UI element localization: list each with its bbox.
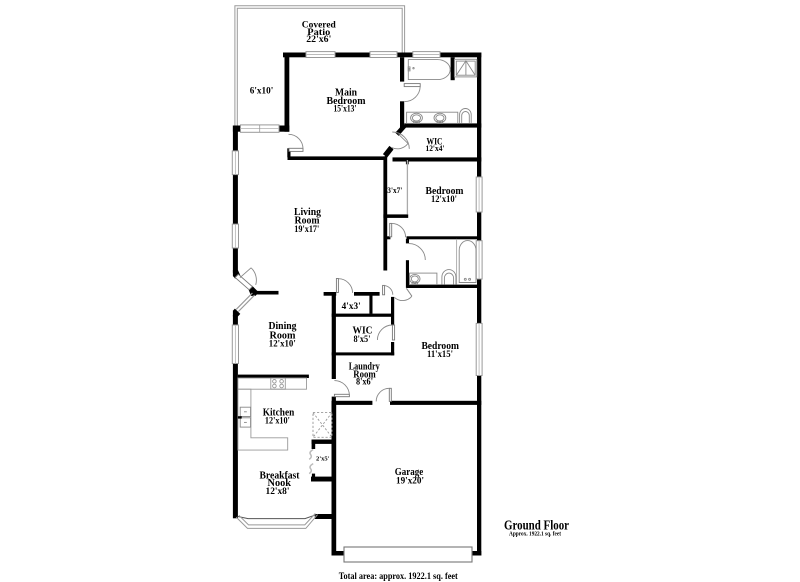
svg-text:12'x8': 12'x8' bbox=[266, 486, 290, 496]
svg-text:12'x10': 12'x10' bbox=[265, 415, 290, 425]
svg-text:15'x13': 15'x13' bbox=[334, 104, 357, 114]
svg-text:19'x17': 19'x17' bbox=[294, 225, 319, 235]
svg-text:8'x6': 8'x6' bbox=[356, 376, 373, 386]
svg-text:Total area: approx. 1922.1 sq.: Total area: approx. 1922.1 sq. feet bbox=[339, 571, 459, 582]
svg-text:4'x3': 4'x3' bbox=[342, 301, 361, 311]
svg-text:12'x10': 12'x10' bbox=[431, 194, 457, 204]
svg-text:22'x6': 22'x6' bbox=[306, 34, 331, 44]
svg-text:Ground Floor: Ground Floor bbox=[504, 517, 569, 532]
svg-text:2'x5': 2'x5' bbox=[316, 456, 330, 463]
svg-text:Approx. 1922.1 sq. feet: Approx. 1922.1 sq. feet bbox=[509, 531, 561, 537]
svg-text:6'x10': 6'x10' bbox=[250, 87, 274, 97]
svg-text:8'x5': 8'x5' bbox=[354, 334, 371, 344]
svg-text:12'x4': 12'x4' bbox=[426, 143, 445, 153]
svg-text:3'x7': 3'x7' bbox=[387, 185, 402, 195]
svg-text:11'x15': 11'x15' bbox=[427, 349, 453, 359]
svg-text:12'x10': 12'x10' bbox=[269, 338, 296, 348]
svg-text:19'x20': 19'x20' bbox=[396, 475, 424, 485]
